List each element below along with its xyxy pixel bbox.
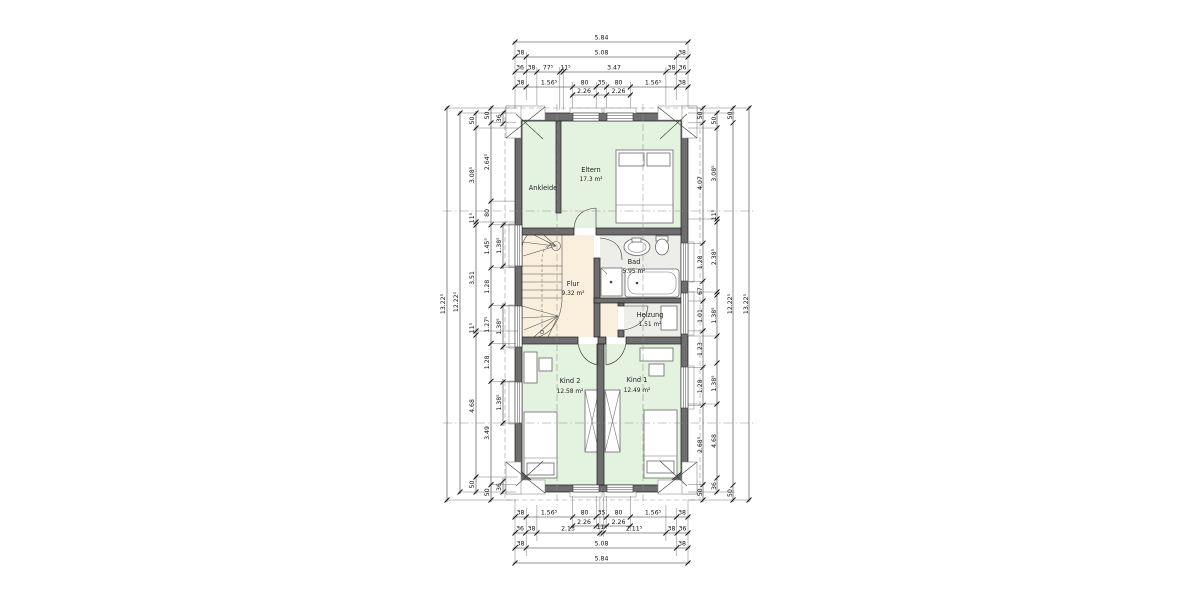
dim-label: 1.27⁵: [484, 316, 491, 333]
dim-label: 2.38⁵: [711, 248, 718, 265]
bad-tub-drain: [636, 282, 639, 285]
dim-label: 12.22⁵: [727, 293, 734, 314]
window-top-2: [607, 113, 633, 121]
window-ledge: [688, 366, 694, 409]
dim-label: 50: [711, 117, 718, 125]
dim-label: 50: [727, 111, 734, 119]
kind2-chair: [539, 358, 552, 371]
dim-label: 11⁵: [469, 322, 476, 333]
dim-label: 80: [615, 80, 623, 87]
dim-label: 50: [727, 489, 734, 497]
dim-label: 5.08: [595, 541, 609, 548]
dim-label: 1.28: [484, 280, 491, 294]
dim-label: 3.51: [469, 271, 476, 285]
dim-label: 1.38⁵: [711, 375, 718, 392]
window-ledge: [509, 305, 515, 348]
dim-label: 11⁵: [711, 209, 718, 220]
dim-label: 38: [678, 50, 686, 57]
dim-label: 2.26: [612, 519, 626, 526]
bad-shower-drain: [610, 281, 613, 284]
wall-flur-bad: [594, 258, 600, 337]
dim-block-right: 50 4.07 1.28 67 1.01 1.23 1.28 2.68⁵ 50 …: [688, 106, 752, 503]
kind1-chair: [649, 364, 664, 376]
dim-label: 13.22⁵: [743, 293, 750, 314]
dim-label: 36: [496, 483, 503, 491]
dim-label: 77⁵: [543, 65, 554, 72]
dim-label: 1.56⁵: [645, 80, 662, 87]
dim-label: 1.56⁵: [541, 510, 558, 517]
dim-label: 2.68⁵: [697, 436, 704, 453]
dim-label: 5.08: [595, 50, 609, 57]
dim-label: 38: [678, 510, 686, 517]
dim-label: 1.38⁵: [711, 307, 718, 324]
dim-label: 36: [496, 114, 503, 122]
room-label-bad: Bad: [628, 258, 641, 266]
dim-label: 36: [711, 482, 718, 490]
dim-label: 38: [517, 80, 525, 87]
room-label-kind2: Kind 2: [560, 377, 581, 385]
dim-label: 12.22⁵: [453, 291, 460, 312]
room-area-bad: 5.95 m²: [622, 268, 645, 275]
window-left-3: [515, 382, 522, 423]
floorplan-drawing: Eltern 17.3 m² Ankleide Bad 5.95 m² Flur…: [0, 0, 1200, 600]
room-area-heizung: 1.51 m²: [638, 321, 661, 328]
kind1-desk: [640, 348, 673, 361]
window-bottom-1: [573, 485, 599, 492]
window-ledge: [604, 108, 636, 113]
dim-label: 1.23: [697, 342, 704, 356]
window-ledge: [509, 224, 515, 267]
room-label-kind1: Kind 1: [627, 376, 648, 384]
room-label-flur: Flur: [567, 280, 580, 288]
dim-label: 4.07: [697, 176, 704, 190]
dim-label: 1.56⁵: [541, 80, 558, 87]
window-ledge: [509, 381, 515, 424]
dim-label: 67: [697, 287, 704, 295]
window-top-1: [573, 113, 599, 121]
dim-label: 4.68: [469, 399, 476, 413]
dim-label: 50: [697, 111, 704, 119]
room-area-flur: 9.32 m²: [561, 290, 584, 297]
window-ledge: [570, 108, 602, 113]
dim-label: 13.22⁵: [440, 293, 447, 314]
dim-label: 1.28: [484, 355, 491, 369]
wall-kind-divider: [597, 344, 604, 485]
window-left-2: [515, 306, 522, 347]
dim-label: 38: [668, 526, 676, 533]
window-ledge: [688, 242, 694, 282]
dim-label: 5.84: [595, 35, 609, 42]
dim-label: 1.45⁵: [484, 238, 491, 255]
dim-label: 36: [679, 65, 687, 72]
kind2-pillow: [527, 463, 554, 475]
bad-sink-tap: [632, 238, 641, 242]
corner-tl-box2: [506, 106, 521, 138]
dim-label: 1.28: [697, 379, 704, 393]
dim-label: 38: [517, 541, 525, 548]
dim-label: 2.26: [577, 88, 591, 95]
room-area-eltern: 17.3 m²: [579, 176, 602, 183]
dim-label: 36: [679, 526, 687, 533]
wall-flur-kind1: [626, 337, 681, 344]
kind1-pillow: [647, 461, 674, 473]
dim-label: 3.49: [484, 426, 491, 440]
dim-block-bottom: 38 1.56⁵ 80 35 80 1.56⁵ 38 2.26 2.26 36 …: [513, 496, 691, 566]
dim-label: 4.68: [711, 434, 718, 448]
window-ledge: [570, 492, 602, 497]
dim-label: 1.38⁵: [496, 318, 503, 335]
dim-label: 11⁵: [469, 212, 476, 223]
window-right-1: [681, 243, 688, 281]
window-bottom-2: [607, 485, 633, 492]
dim-label: 38: [668, 65, 676, 72]
window-ledge: [688, 292, 694, 335]
dim-block-left: 13.22⁵ 12.22⁵ 50 3.08⁵ 11⁵ 3.51 11⁵ 4.68…: [440, 106, 518, 503]
room-label-eltern: Eltern: [581, 166, 600, 174]
dim-label: 50: [484, 488, 491, 496]
dim-label: 80: [581, 510, 589, 517]
dim-label: 50: [469, 117, 476, 125]
dim-label: 80: [484, 209, 491, 217]
bad-wc: [656, 239, 669, 255]
wall-bad-bottom: [594, 298, 681, 303]
dim-label: 36: [516, 526, 524, 533]
dim-label: 3.47: [607, 65, 621, 72]
dim-label: 1.38⁵: [496, 237, 503, 254]
dim-label: 50: [469, 481, 476, 489]
top-dim-ticks: [513, 40, 691, 98]
wall-center-stub: [598, 337, 606, 344]
window-ledge: [604, 492, 636, 497]
dim-label: 36: [516, 65, 524, 72]
dim-label: 1.28: [697, 255, 704, 269]
wall-flur-kind2: [522, 337, 578, 344]
corner-br-box2: [682, 462, 697, 494]
wall-heizung-stub-bottom: [618, 330, 624, 337]
dim-label: 2.13: [561, 526, 575, 533]
dim-label: 80: [615, 510, 623, 517]
dim-label: 2.26: [577, 519, 591, 526]
dim-label: 1.56⁵: [645, 510, 662, 517]
dim-label: 35: [598, 80, 606, 87]
dim-label: 50: [697, 488, 704, 496]
dim-label: 5.84: [595, 556, 609, 563]
window-right-2: [681, 293, 688, 334]
dim-label: 1.01: [697, 309, 704, 323]
eltern-pillow-right: [647, 153, 670, 166]
dim-label: 1.38⁵: [496, 394, 503, 411]
dim-label: 38: [678, 80, 686, 87]
kind2-desk: [524, 352, 537, 383]
dim-label: 2.11⁵: [626, 526, 643, 533]
corner-tr-box2: [682, 106, 697, 138]
corner-bl-box2: [506, 462, 521, 494]
window-left-1: [515, 225, 522, 266]
room-label-heizung: Heizung: [637, 311, 664, 319]
room-area-kind2: 12.58 m²: [557, 388, 584, 395]
dim-label: 2.64⁵: [484, 153, 491, 170]
floorplan-canvas: Eltern 17.3 m² Ankleide Bad 5.95 m² Flur…: [0, 0, 1200, 600]
dim-label: 11⁵: [596, 524, 607, 531]
dim-label: 38: [528, 65, 536, 72]
wall-eltern-flur: [522, 228, 574, 235]
dim-label: 38: [528, 526, 536, 533]
dim-label: 38: [678, 541, 686, 548]
dim-label: 3.08⁵: [711, 165, 718, 182]
room-label-ankleide: Ankleide: [529, 184, 557, 192]
dim-label: 50: [484, 111, 491, 119]
room-area-kind1: 12.49 m²: [624, 387, 651, 394]
dim-label: 80: [581, 80, 589, 87]
eltern-pillow-left: [619, 153, 644, 166]
dim-label: 38: [517, 50, 525, 57]
dim-label: 2.26: [612, 88, 626, 95]
dim-label: 3.08⁵: [469, 166, 476, 183]
wall-eltern-bad: [596, 228, 681, 235]
wall-heizung-stub-top: [618, 303, 624, 306]
floor-flur-nook: [600, 303, 618, 337]
dim-label: 38: [517, 510, 525, 517]
dim-label: 11⁵: [560, 65, 571, 72]
window-right-3: [681, 367, 688, 408]
dim-label: 35: [598, 510, 606, 517]
dim-block-top: 5.84 38 5.08 38 36 38 77⁵ 11⁵ 3.47 38 36…: [513, 35, 691, 111]
